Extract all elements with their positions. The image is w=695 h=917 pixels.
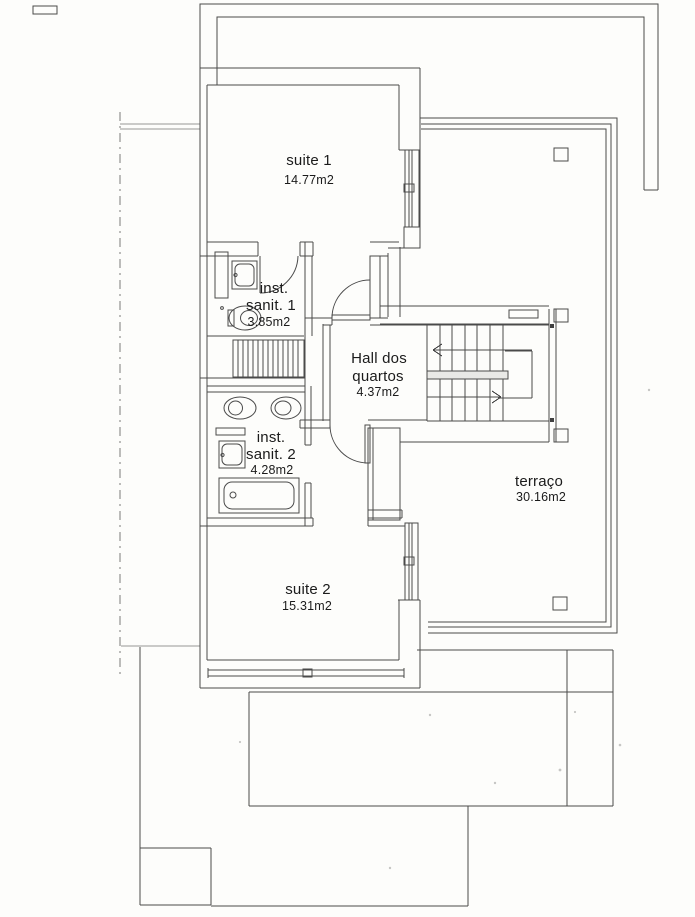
- floor-plan-drawing: [0, 0, 695, 917]
- site-outline-lower: [140, 647, 613, 906]
- hall-suite2-door: [330, 425, 370, 463]
- suite1-terrace-slider: [404, 150, 420, 248]
- suite1-label: suite 1: [286, 152, 332, 169]
- suite2-south-window: [208, 668, 404, 678]
- stair-handrail: [427, 371, 508, 379]
- staircase: [427, 309, 556, 442]
- terraco-area: 30.16m2: [516, 490, 566, 504]
- sanit1-label-1: inst.: [260, 280, 289, 297]
- hall-area: 4.37m2: [357, 385, 400, 399]
- suite1-area: 14.77m2: [284, 173, 334, 187]
- washbasin-icon: [219, 441, 245, 468]
- suite2-terrace-slider: [404, 523, 418, 600]
- terraco-label: terraço: [515, 473, 563, 490]
- sanit2-area: 4.28m2: [251, 463, 294, 477]
- partition-suite2: [200, 510, 405, 526]
- site-boundary-left: [120, 112, 200, 676]
- hall-label-2: quartos: [352, 368, 403, 385]
- hall-suite1-door: [332, 280, 370, 320]
- toilet-icon: [271, 397, 301, 419]
- partition-suite1-bath1: [200, 242, 399, 256]
- bathtub-icon: [219, 478, 299, 513]
- suite2-label: suite 2: [285, 581, 331, 598]
- sanit2-label-1: inst.: [257, 429, 286, 446]
- shower-icon: [207, 336, 304, 377]
- terrace-columns: [553, 148, 568, 610]
- suite2-area: 15.31m2: [282, 599, 332, 613]
- canopy-outline: [200, 4, 658, 190]
- sanit1-area: 3.85m2: [248, 315, 291, 329]
- registration-mark: [33, 6, 57, 14]
- floor-plan-page: suite 1 14.77m2 inst. sanit. 1 3.85m2 Ha…: [0, 0, 695, 917]
- sanit1-label-2: sanit. 1: [246, 297, 296, 314]
- scan-specks: [239, 389, 650, 869]
- hall-label-1: Hall dos: [351, 350, 407, 367]
- bath1-shelf: [215, 252, 228, 298]
- washbasin-icon: [232, 261, 257, 289]
- bidet-icon: [224, 397, 256, 419]
- sanit2-label-2: sanit. 2: [246, 446, 296, 463]
